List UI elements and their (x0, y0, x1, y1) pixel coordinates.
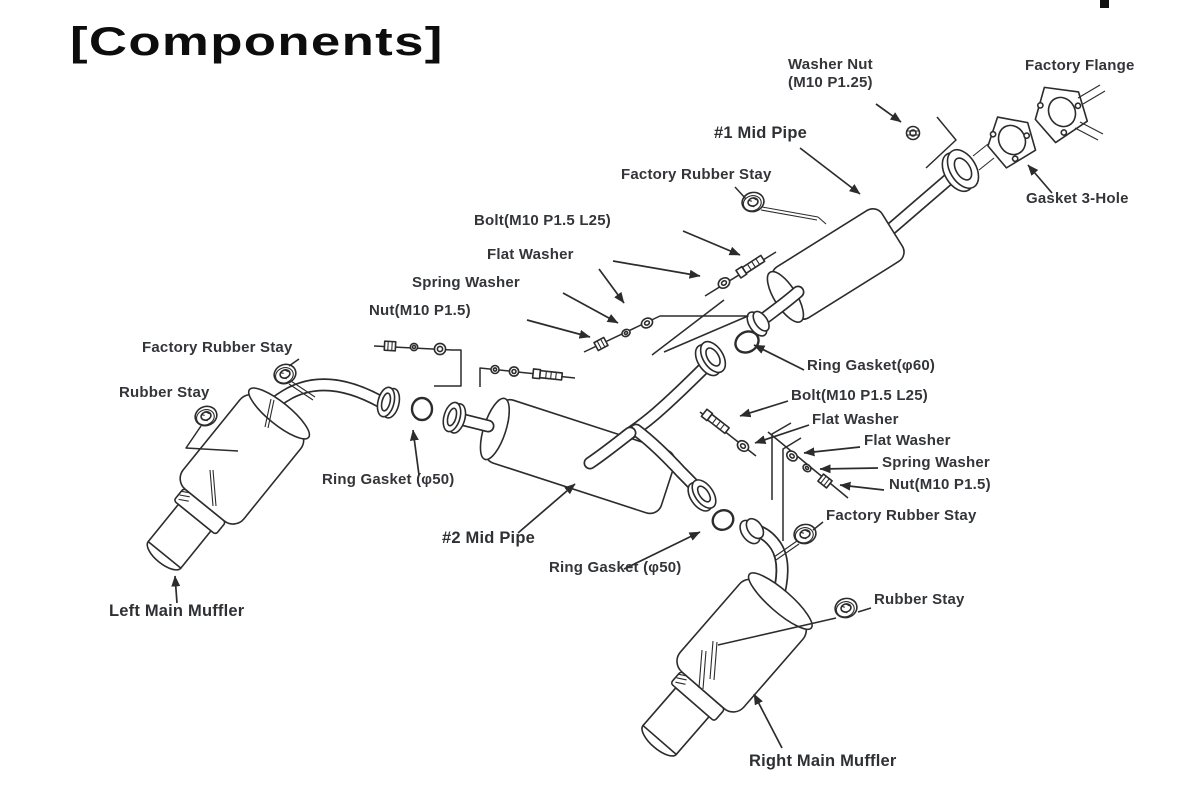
mid-pipe-2-assembly (460, 360, 712, 517)
label-bolt-right: Bolt(M10 P1.5 L25) (791, 387, 928, 405)
label-ring-gasket-50-right: Ring Gasket (φ50) (549, 559, 682, 577)
rubber-stay-icon (192, 403, 219, 428)
label-spring-washer-right: Spring Washer (882, 454, 990, 472)
rubber-stay-icon (833, 596, 859, 620)
page-title: [Components] (70, 20, 444, 65)
label-spring-washer-left: Spring Washer (412, 274, 520, 292)
label-mid-pipe-2: #2 Mid Pipe (442, 529, 535, 547)
bolt-icon (533, 369, 563, 381)
flat-washer-icon (785, 449, 799, 463)
nut-icon (818, 474, 832, 488)
label-nut-left: Nut(M10 P1.5) (369, 302, 471, 320)
label-ring-gasket-50-left: Ring Gasket (φ50) (322, 471, 455, 489)
ring-gasket-50-right-icon (709, 507, 737, 534)
washer-nut-icon (907, 127, 920, 140)
label-flat-washer-left: Flat Washer (487, 246, 574, 264)
nut-icon (594, 337, 608, 350)
ring-gasket-50-left-icon (412, 398, 432, 420)
label-washer-nut: Washer Nut (M10 P1.25) (788, 56, 873, 92)
spring-washer-icon (802, 463, 813, 474)
label-gasket-3-hole: Gasket 3-Hole (1026, 190, 1129, 208)
label-mid-pipe-1: #1 Mid Pipe (714, 124, 807, 142)
label-flat-washer-right-1: Flat Washer (812, 411, 899, 429)
bolt-icon (736, 255, 765, 278)
flat-washer-icon (640, 316, 655, 330)
label-factory-rubber-stay-left: Factory Rubber Stay (142, 339, 293, 357)
label-ring-gasket-60: Ring Gasket(φ60) (807, 357, 935, 375)
nut-icon (384, 341, 395, 351)
label-right-main-muffler: Right Main Muffler (749, 752, 897, 770)
label-nut-right: Nut(M10 P1.5) (889, 476, 991, 494)
label-left-main-muffler: Left Main Muffler (109, 602, 244, 620)
label-factory-rubber-stay-top: Factory Rubber Stay (621, 166, 772, 184)
label-rubber-stay-left: Rubber Stay (119, 384, 210, 402)
label-bolt-left: Bolt(M10 P1.5 L25) (474, 212, 611, 230)
label-factory-rubber-stay-right: Factory Rubber Stay (826, 507, 977, 525)
label-flat-washer-right-2: Flat Washer (864, 432, 951, 450)
label-factory-flange: Factory Flange (1025, 57, 1135, 75)
cropped-text-fragment (1100, 0, 1109, 8)
label-rubber-stay-right: Rubber Stay (874, 591, 965, 609)
components-diagram-page: [Components] Washer Nut (M10 P1.25) Fact… (0, 0, 1200, 800)
bolt-icon (701, 409, 729, 434)
